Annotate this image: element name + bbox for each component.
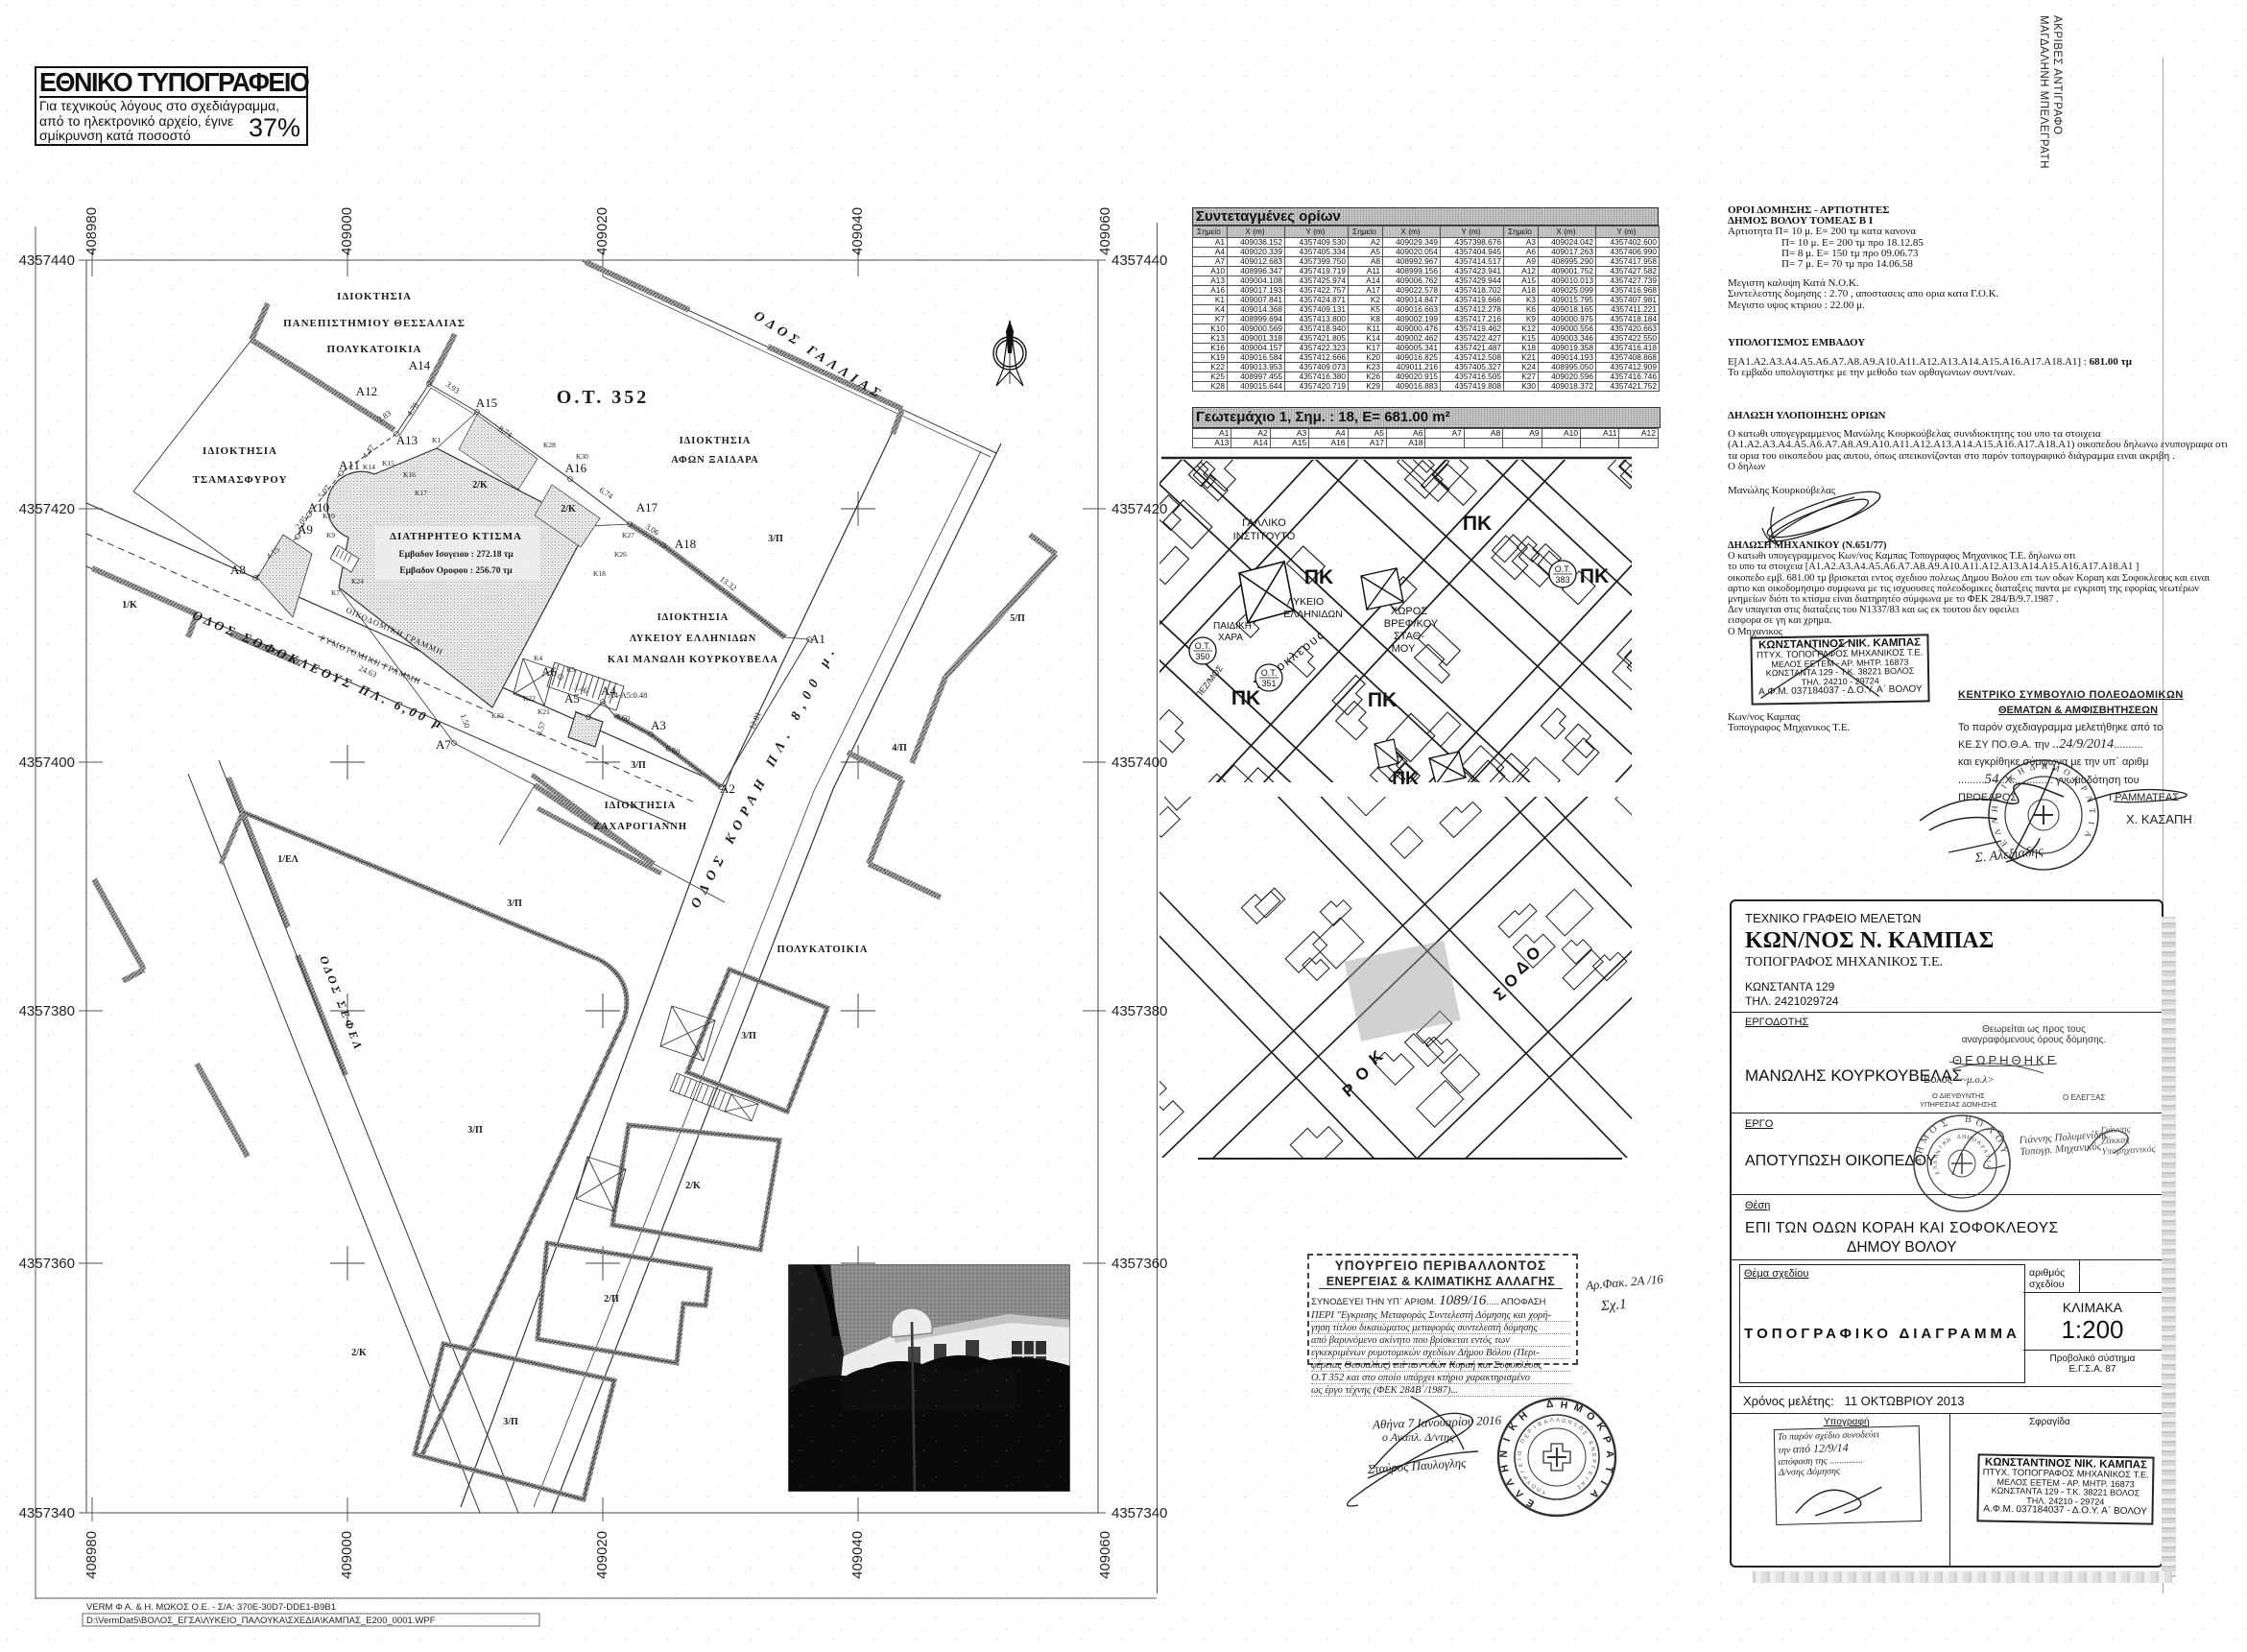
svg-text:K30: K30 xyxy=(576,452,588,461)
svg-text:ΠΕΖ/ΜΟΣ: ΠΕΖ/ΜΟΣ xyxy=(1193,663,1225,700)
svg-text:Ο: Ο xyxy=(1927,1124,1940,1137)
svg-text:D:\VermDat5\ΒΟΛΟΣ_ΕΓΣΑ\ΛΥΚΕΙΟ_: D:\VermDat5\ΒΟΛΟΣ_ΕΓΣΑ\ΛΥΚΕΙΟ_ΠΑΛΟΥΚΑ\ΣΧ… xyxy=(86,1616,436,1626)
svg-text:Ε: Ε xyxy=(1524,1496,1536,1510)
svg-text:ΙΝΣΤΙΤΟΥΤΟ: ΙΝΣΤΙΤΟΥΤΟ xyxy=(1233,531,1296,542)
svg-text:Λ: Λ xyxy=(1992,827,2003,837)
svg-text:409000: 409000 xyxy=(339,1531,355,1579)
svg-text:4357340: 4357340 xyxy=(1112,1505,1167,1521)
svg-text:Μ: Μ xyxy=(1572,1401,1585,1416)
svg-text:A14: A14 xyxy=(409,358,431,372)
svg-text:Ρ: Ρ xyxy=(1527,1428,1534,1435)
svg-text:2/Κ: 2/Κ xyxy=(351,1348,367,1358)
svg-text:Δ: Δ xyxy=(1957,1135,1962,1140)
svg-text:ΙΔΙΟΚΤΗΣΙΑ: ΙΔΙΟΚΤΗΣΙΑ xyxy=(657,612,729,623)
svg-text:ΛΥΚΕΙΟ: ΛΥΚΕΙΟ xyxy=(1287,596,1324,608)
svg-text:4.78: 4.78 xyxy=(404,400,420,418)
svg-text:ΑΦΩΝ ΞΑΙΔΑΡΑ: ΑΦΩΝ ΞΑΙΔΑΡΑ xyxy=(671,455,759,466)
svg-text:4357360: 4357360 xyxy=(19,1256,75,1272)
svg-text:Ε: Ε xyxy=(1590,1453,1596,1457)
svg-text:ΧΑΡΑ: ΧΑΡΑ xyxy=(1218,633,1243,643)
svg-text:Α: Α xyxy=(1985,1164,1992,1170)
svg-text:2/Κ: 2/Κ xyxy=(685,1181,701,1191)
svg-text:A8: A8 xyxy=(230,563,246,577)
svg-text:ΠΑΝΕΠΙΣΤΗΜΙΟΥ ΘΕΣΣΑΛΙΑΣ: ΠΑΝΕΠΙΣΤΗΜΙΟΥ ΘΕΣΣΑΛΙΑΣ xyxy=(283,318,466,329)
svg-text:408980: 408980 xyxy=(84,1531,100,1579)
svg-text:Ν: Ν xyxy=(1566,1420,1572,1426)
svg-text:ΙΔΙΟΚΤΗΣΙΑ: ΙΔΙΟΚΤΗΣΙΑ xyxy=(337,291,412,302)
svg-text:Σ: Σ xyxy=(1575,1483,1582,1490)
svg-text:K14: K14 xyxy=(363,463,375,471)
svg-text:4357360: 4357360 xyxy=(1112,1256,1167,1272)
svg-text:ΛΥΚΕΙΟΥ ΕΛΛΗΝΙΔΩΝ: ΛΥΚΕΙΟΥ ΕΛΛΗΝΙΔΩΝ xyxy=(630,634,757,644)
svg-text:Ο: Ο xyxy=(1351,1063,1373,1085)
svg-text:Α: Α xyxy=(1604,1450,1615,1459)
svg-text:A3: A3 xyxy=(651,718,666,732)
svg-text:K1: K1 xyxy=(432,436,441,444)
svg-text:4/Π: 4/Π xyxy=(892,743,907,754)
svg-text:3/Π: 3/Π xyxy=(503,1417,518,1427)
svg-text:Ο: Ο xyxy=(1973,1117,1984,1130)
svg-text:3.93: 3.93 xyxy=(444,379,462,395)
svg-text:A1: A1 xyxy=(810,632,825,646)
svg-text:Δ: Δ xyxy=(1913,1158,1924,1164)
svg-text:ΠΚ: ΠΚ xyxy=(1580,565,1609,587)
svg-text:K28: K28 xyxy=(543,441,556,449)
svg-text:Ε: Ε xyxy=(1586,1470,1592,1475)
svg-text:A12: A12 xyxy=(356,384,377,398)
svg-text:Ο.Τ.: Ο.Τ. xyxy=(1555,564,1571,574)
svg-text:Χ. ΚΑΣΑΠΗ: Χ. ΚΑΣΑΠΗ xyxy=(2126,812,2192,826)
svg-text:Υ: Υ xyxy=(1997,1145,2010,1155)
svg-text:Α4-Α5:0.48: Α4-Α5:0.48 xyxy=(609,690,648,700)
svg-text:1/ΕΛ: 1/ΕΛ xyxy=(277,854,299,865)
svg-text:2/Κ: 2/Κ xyxy=(472,480,488,491)
svg-text:Ι: Ι xyxy=(1598,1478,1610,1486)
svg-text:1/Κ: 1/Κ xyxy=(122,600,137,611)
svg-text:ΣΤΑΘ-: ΣΤΑΘ- xyxy=(1394,631,1424,642)
svg-text:Τ: Τ xyxy=(1984,1154,1991,1159)
svg-text:6.74: 6.74 xyxy=(598,485,616,501)
svg-text:409060: 409060 xyxy=(1097,1531,1113,1579)
svg-text:Σ. Αλεξιαδης: Σ. Αλεξιαδης xyxy=(1973,845,2044,867)
svg-text:4357380: 4357380 xyxy=(19,1003,75,1019)
svg-text:ΔΙΑΤΗΡΗΤΕΟ ΚΤΙΣΜΑ: ΔΙΑΤΗΡΗΤΕΟ ΚΤΙΣΜΑ xyxy=(390,531,522,542)
svg-text:Σ: Σ xyxy=(1490,984,1509,1004)
svg-text:ΖΑΧΑΡΟΓΙΑΝΝΗ: ΖΑΧΑΡΟΓΙΑΝΝΗ xyxy=(593,822,687,832)
svg-text:Εμβαδον Οροφου : 256.70 τμ: Εμβαδον Οροφου : 256.70 τμ xyxy=(399,566,513,576)
svg-text:K27: K27 xyxy=(622,531,634,539)
svg-text:Ο.Τ. 352: Ο.Τ. 352 xyxy=(557,387,649,408)
svg-text:Τ: Τ xyxy=(2088,808,2097,815)
svg-text:1.50: 1.50 xyxy=(459,712,472,729)
svg-text:Λ: Λ xyxy=(1984,1124,1996,1137)
svg-text:3/Π: 3/Π xyxy=(768,534,783,544)
svg-text:Ε: Ε xyxy=(1518,1462,1525,1467)
svg-text:409040: 409040 xyxy=(849,1531,866,1579)
svg-text:Ο: Ο xyxy=(2062,766,2072,778)
svg-text:4357400: 4357400 xyxy=(19,754,75,771)
svg-text:Λ: Λ xyxy=(1550,1418,1555,1424)
svg-text:Λ: Λ xyxy=(1933,1160,1939,1164)
svg-text:ΠΚ: ΠΚ xyxy=(1463,513,1492,535)
svg-text:Ο: Ο xyxy=(1518,1450,1523,1456)
svg-text:K7: K7 xyxy=(331,588,340,597)
svg-text:K23: K23 xyxy=(491,711,504,720)
svg-text:Ρ: Ρ xyxy=(2079,784,2090,794)
svg-text:ΟΔΟΣ ΓΑΛΛΙΑΣ: ΟΔΟΣ ΓΑΛΛΙΑΣ xyxy=(751,309,886,404)
svg-text:Ρ: Ρ xyxy=(1522,1473,1529,1480)
svg-text:ΤΣΑΜΑΣΦΥΡΟΥ: ΤΣΑΜΑΣΦΥΡΟΥ xyxy=(193,474,288,486)
svg-text:8.57: 8.57 xyxy=(534,720,547,736)
svg-text:A16: A16 xyxy=(565,461,587,475)
svg-text:Ρ: Ρ xyxy=(1600,1435,1614,1446)
svg-text:K24: K24 xyxy=(351,577,364,586)
svg-text:ΟΔΟΣ ΚΟΡΑΗ ΠΛ. 8,00 μ.: ΟΔΟΣ ΚΟΡΑΗ ΠΛ. 8,00 μ. xyxy=(688,641,841,911)
svg-text:K9: K9 xyxy=(326,531,335,539)
svg-text:ΕΛΛΗΝΙΔΩΝ: ΕΛΛΗΝΙΔΩΝ xyxy=(1283,609,1343,620)
svg-text:K26: K26 xyxy=(614,550,627,559)
svg-text:Β: Β xyxy=(1538,1421,1543,1427)
svg-text:409040: 409040 xyxy=(849,207,866,255)
svg-text:3/Π: 3/Π xyxy=(631,760,646,771)
svg-text:Τ: Τ xyxy=(1602,1465,1614,1473)
svg-text:K4: K4 xyxy=(534,654,542,662)
svg-text:Ι: Ι xyxy=(1584,1475,1590,1480)
svg-text:Ρ: Ρ xyxy=(1339,1080,1359,1101)
svg-text:Εμβαδον Ισογειου : 272.18 τμ: Εμβαδον Ισογειου : 272.18 τμ xyxy=(398,550,514,560)
svg-text:Ν: Ν xyxy=(1498,1450,1510,1458)
svg-text:K15: K15 xyxy=(382,459,394,467)
svg-text:A13: A13 xyxy=(396,433,418,447)
svg-text:Γ: Γ xyxy=(1590,1465,1596,1470)
svg-text:4357420: 4357420 xyxy=(19,501,75,517)
svg-text:Ι: Ι xyxy=(1501,1437,1513,1444)
svg-text:Λ: Λ xyxy=(1513,1487,1525,1499)
svg-text:Β: Β xyxy=(1964,1114,1972,1126)
svg-text:A5: A5 xyxy=(564,691,580,706)
svg-text:Σ: Σ xyxy=(1940,1117,1949,1129)
svg-text:409020: 409020 xyxy=(594,207,610,255)
svg-text:Σ: Σ xyxy=(1581,1430,1588,1437)
svg-text:ΙΔΙΟΚΤΗΣΙΑ: ΙΔΙΟΚΤΗΣΙΑ xyxy=(605,801,677,811)
svg-text:K5: K5 xyxy=(566,665,575,674)
svg-text:Δ: Δ xyxy=(2028,762,2036,773)
svg-text:ΠΟΛΥΚΑΤΟΙΚΙΑ: ΠΟΛΥΚΑΤΟΙΚΙΑ xyxy=(777,945,869,955)
svg-text:ΙΔΙΟΚΤΗΣΙΑ: ΙΔΙΟΚΤΗΣΙΑ xyxy=(203,445,277,457)
svg-text:4357340: 4357340 xyxy=(19,1505,75,1521)
svg-text:5/Π: 5/Π xyxy=(1010,613,1025,624)
svg-text:Ν: Ν xyxy=(1590,1447,1596,1451)
svg-text:A7: A7 xyxy=(436,737,451,752)
svg-text:Λ: Λ xyxy=(1556,1418,1560,1424)
svg-text:ΠΚ: ΠΚ xyxy=(1368,689,1397,711)
svg-text:Γ: Γ xyxy=(1520,1469,1527,1473)
svg-text:Ε: Ε xyxy=(1587,1441,1593,1447)
svg-text:408980: 408980 xyxy=(84,207,100,255)
svg-text:ΠΟΛΥΚΑΤΟΙΚΙΑ: ΠΟΛΥΚΑΤΟΙΚΙΑ xyxy=(327,344,422,355)
svg-text:ΠΚ: ΠΚ xyxy=(1392,769,1419,789)
svg-text:Ι: Ι xyxy=(1518,1458,1523,1460)
svg-text:K16: K16 xyxy=(403,470,416,479)
svg-text:VERM Φ Α. & Η. ΜΩΚΟΣ Ο.Ε. -: VERM Φ Α. & Η. ΜΩΚΟΣ Ο.Ε. - Σ/Α: 370Ε-30… xyxy=(86,1602,336,1613)
svg-text:Μ: Μ xyxy=(1919,1133,1932,1146)
svg-text:4357440: 4357440 xyxy=(1112,252,1167,269)
svg-text:ΠΚ: ΠΚ xyxy=(1304,566,1333,588)
svg-text:4357440: 4357440 xyxy=(19,252,75,269)
svg-text:Η: Η xyxy=(1498,1464,1511,1473)
svg-text:Ε: Ε xyxy=(1998,838,2010,849)
svg-text:ΒΡΕΦ/ΚΟΥ: ΒΡΕΦ/ΚΟΥ xyxy=(1384,618,1439,630)
svg-text:Κ: Κ xyxy=(2006,773,2018,784)
svg-text:A15: A15 xyxy=(476,395,497,410)
svg-text:Η: Η xyxy=(1560,1400,1568,1412)
svg-text:4.60: 4.60 xyxy=(614,710,631,724)
svg-text:409060: 409060 xyxy=(1097,207,1113,255)
svg-text:Ο.Τ.: Ο.Τ. xyxy=(1195,641,1211,651)
svg-text:Ι: Ι xyxy=(2087,821,2096,826)
svg-text:Α: Α xyxy=(1543,1420,1549,1426)
svg-text:3/Π: 3/Π xyxy=(507,898,522,909)
svg-text:K22: K22 xyxy=(523,694,536,703)
svg-text:Ο: Ο xyxy=(1522,943,1543,965)
svg-text:383: 383 xyxy=(1555,575,1569,585)
svg-text:Ρ: Ρ xyxy=(1590,1459,1596,1464)
svg-text:Η: Η xyxy=(2042,761,2048,771)
svg-text:ΠΚ: ΠΚ xyxy=(1231,687,1260,709)
svg-text:ΠΑΙΔΙΚΗ: ΠΑΙΔΙΚΗ xyxy=(1213,621,1252,632)
svg-text:Κ: Κ xyxy=(1366,1046,1387,1068)
svg-text:ΟΔΟΣ ΣΕΦΕΛ: ΟΔΟΣ ΣΕΦΕΛ xyxy=(317,954,366,1054)
svg-text:Ι: Ι xyxy=(1985,1161,1991,1162)
svg-text:Λ: Λ xyxy=(1503,1476,1517,1488)
svg-text:Ο: Ο xyxy=(1992,1134,2004,1145)
svg-text:ΓΑΛΛΙΚΟ: ΓΑΛΛΙΚΟ xyxy=(1242,517,1286,529)
svg-text:Κ: Κ xyxy=(2071,774,2083,785)
svg-text:2/Κ: 2/Κ xyxy=(561,504,576,515)
svg-text:K21: K21 xyxy=(538,707,550,716)
svg-text:A18: A18 xyxy=(675,537,696,551)
svg-text:Α: Α xyxy=(2083,829,2094,839)
svg-text:Ο.Τ.: Ο.Τ. xyxy=(1261,668,1278,678)
svg-text:Ι: Ι xyxy=(1533,1425,1538,1430)
svg-text:Κ: Κ xyxy=(1506,1420,1519,1432)
svg-text:409020: 409020 xyxy=(594,1531,610,1579)
svg-text:K17: K17 xyxy=(415,489,427,497)
svg-text:A11: A11 xyxy=(339,458,360,472)
svg-text:K10: K10 xyxy=(323,512,335,520)
svg-text:ΧΩΡΟΣ: ΧΩΡΟΣ xyxy=(1391,606,1427,617)
svg-text:Η: Η xyxy=(1914,1145,1926,1155)
svg-text:350: 350 xyxy=(1195,652,1209,661)
svg-text:Η: Η xyxy=(1990,804,2000,812)
svg-text:A6: A6 xyxy=(541,664,557,679)
svg-text:Η: Η xyxy=(2016,765,2026,777)
svg-text:409000: 409000 xyxy=(339,207,355,255)
svg-text:Κ: Κ xyxy=(1593,1421,1607,1433)
svg-text:ΚΑΙ ΜΑΝΩΛΗ ΚΟΥΡΚΟΥΒΕΛΑ: ΚΑΙ ΜΑΝΩΛΗ ΚΟΥΡΚΟΥΒΕΛΑ xyxy=(608,655,778,665)
svg-text:Π: Π xyxy=(1520,1438,1527,1444)
svg-text:ΙΔΙΟΚΤΗΣΙΑ: ΙΔΙΟΚΤΗΣΙΑ xyxy=(680,436,752,446)
svg-text:Ι: Ι xyxy=(1999,782,2009,790)
svg-text:Η: Η xyxy=(1517,1410,1529,1424)
svg-text:2/Π: 2/Π xyxy=(604,1294,619,1305)
svg-text:ΜΟΥ: ΜΟΥ xyxy=(1392,643,1416,655)
svg-text:351: 351 xyxy=(1261,679,1276,688)
svg-text:A17: A17 xyxy=(636,500,658,515)
svg-text:3/Π: 3/Π xyxy=(741,1031,756,1041)
svg-text:3/Π: 3/Π xyxy=(467,1125,483,1136)
svg-text:K18: K18 xyxy=(593,569,606,578)
svg-text:Δ: Δ xyxy=(1545,1399,1555,1411)
